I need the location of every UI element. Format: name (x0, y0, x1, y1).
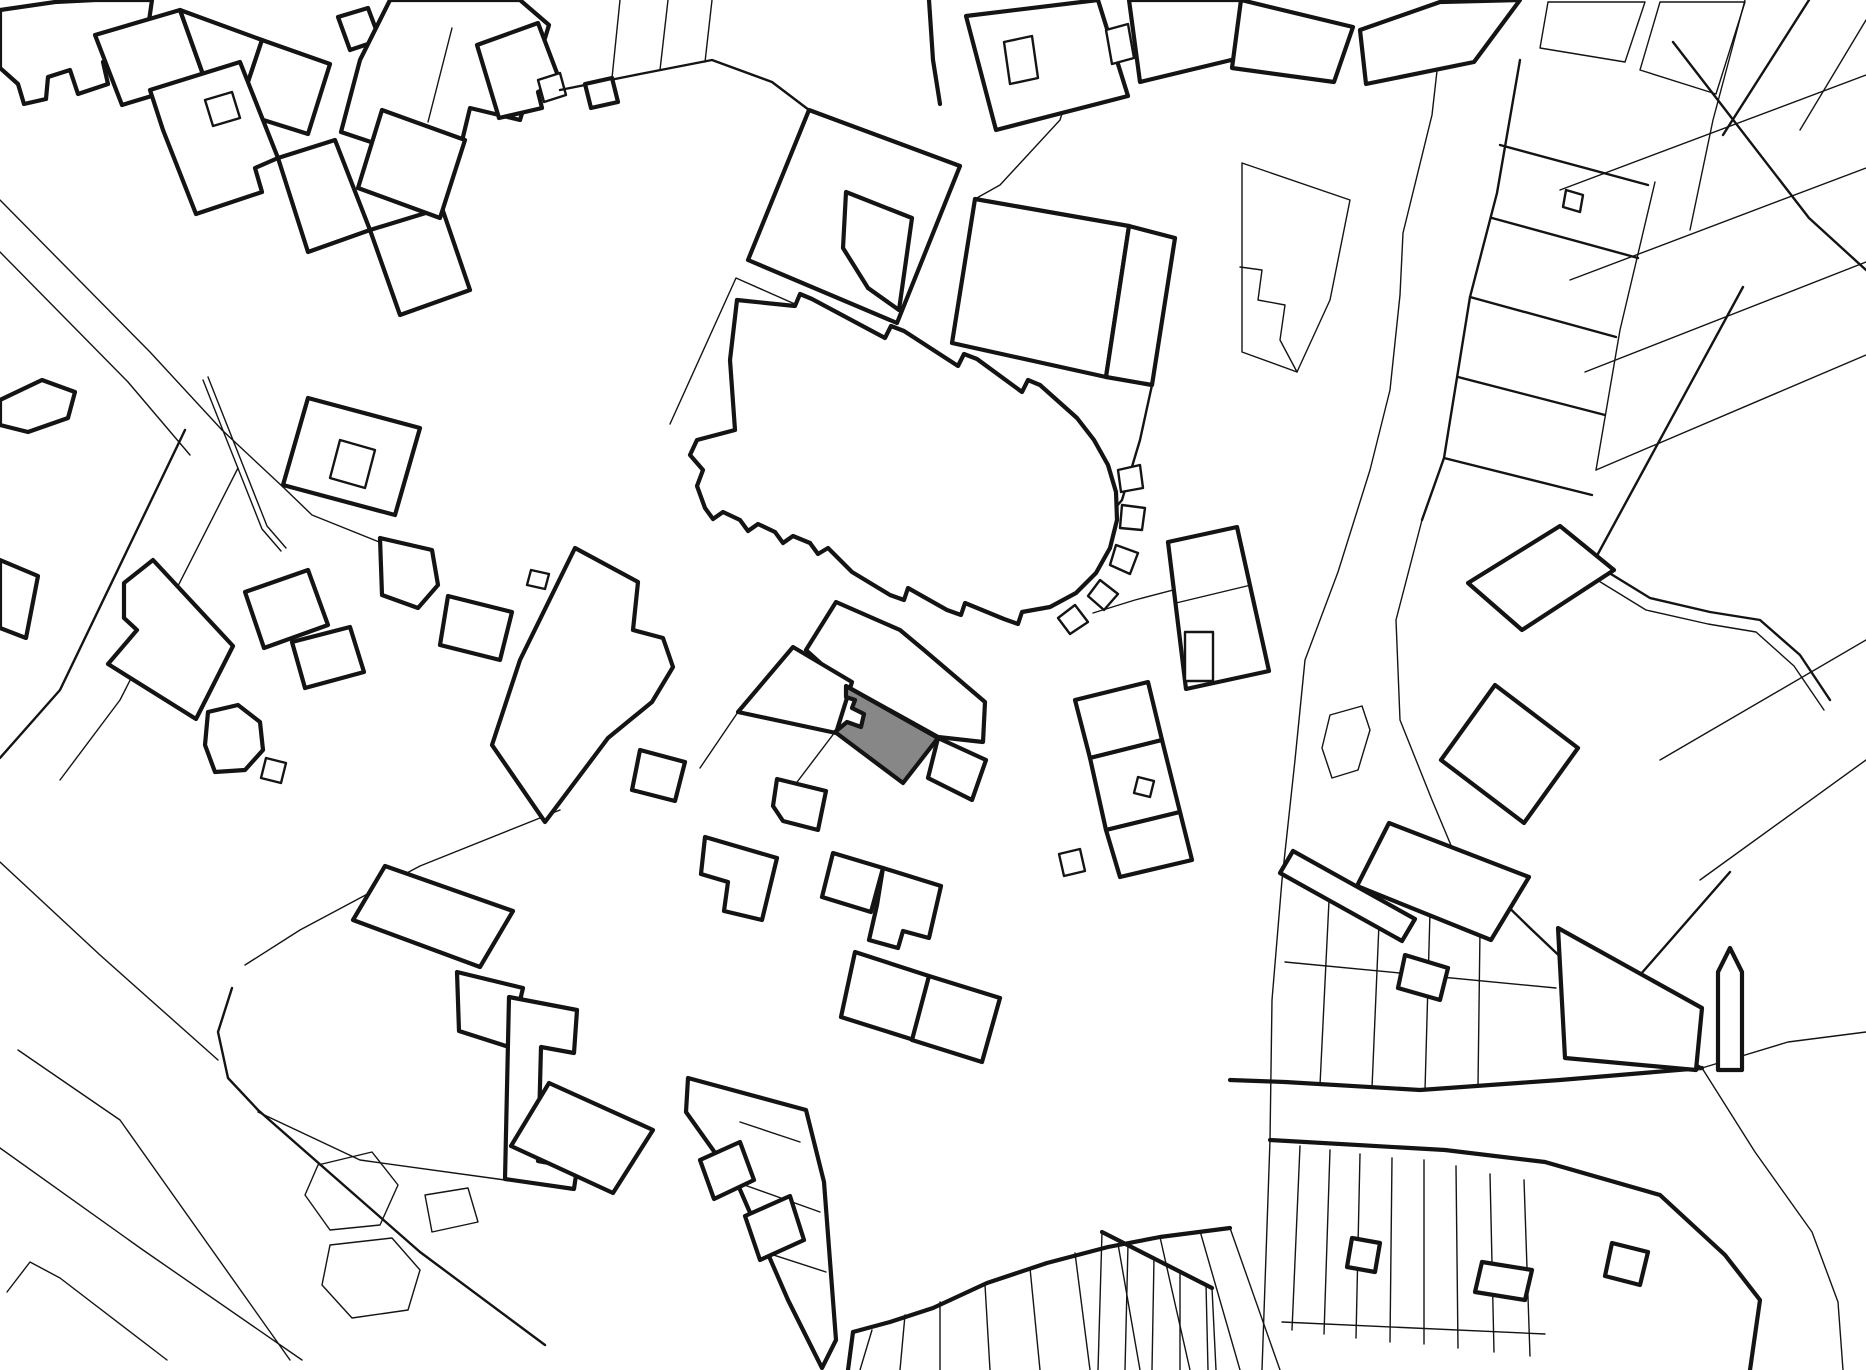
parcel-boundary (1282, 1322, 1545, 1334)
fan-strip (1118, 1244, 1140, 1370)
building-annex (1185, 632, 1213, 681)
strip-parcel (1152, 1258, 1154, 1370)
apse-chapel (1118, 465, 1143, 492)
building (966, 0, 1128, 130)
building (912, 976, 1000, 1062)
parcel-boundary (1478, 930, 1480, 1086)
parcel-divider (1444, 458, 1592, 495)
building-annex (1134, 777, 1154, 797)
parcel-boundary (1240, 267, 1297, 372)
strip-parcel (1212, 1288, 1216, 1370)
parcel-boundary (1596, 182, 1655, 470)
fan-strip (1075, 1253, 1090, 1370)
building (1232, 0, 1353, 82)
fan-strip (860, 1330, 872, 1370)
apse-chapel (1058, 605, 1088, 634)
rail-line (0, 1148, 302, 1360)
parcel-boundary (1320, 880, 1330, 1085)
street-boundary (1396, 520, 1458, 862)
parcel-divider (1492, 218, 1638, 258)
parcel-boundary (1700, 760, 1866, 880)
parcel-boundary (705, 0, 712, 62)
fan-top-edge (853, 1228, 1230, 1332)
building (632, 750, 685, 801)
block-edge (1422, 60, 1520, 520)
apse-chapel (1088, 580, 1118, 610)
country-road (1593, 563, 1830, 700)
building (440, 596, 512, 660)
building (928, 738, 986, 800)
building (108, 560, 233, 719)
strip-parcel (1324, 1150, 1330, 1334)
building-annex (1059, 849, 1085, 876)
fan-left-edge (848, 1332, 853, 1370)
site-plan-svg (0, 0, 1866, 1370)
parcel-divider (1458, 377, 1605, 415)
block-edge (1270, 1140, 1760, 1370)
building (0, 380, 75, 432)
road-line (1673, 42, 1866, 270)
parcel-boundary (1242, 163, 1350, 372)
strip-parcel (1098, 1232, 1102, 1370)
building (1563, 190, 1583, 212)
parcel-divider (1470, 297, 1616, 337)
building (278, 140, 370, 252)
apse-chapel (1120, 505, 1145, 530)
building-annex (261, 758, 286, 783)
block-edge (1230, 1068, 1702, 1090)
apse-chapel (1110, 545, 1138, 574)
street-boundary (222, 430, 283, 487)
parcel-boundary (1540, 2, 1645, 62)
building (370, 208, 470, 315)
parcel-boundary (1640, 2, 1745, 94)
building (1558, 928, 1702, 1070)
building (585, 78, 618, 108)
parcel-boundary (612, 0, 620, 78)
tower (1718, 948, 1742, 1070)
building-annex (1106, 24, 1134, 64)
building (1441, 685, 1578, 823)
parcel-boundary (1800, 20, 1866, 130)
building (1168, 527, 1269, 689)
building (1347, 1238, 1380, 1272)
fan-strip (900, 1315, 905, 1370)
parcel-boundary (1570, 168, 1866, 280)
garden-plot (425, 1188, 478, 1232)
garden-plot (322, 1238, 420, 1318)
parcel-boundary (660, 0, 668, 70)
strip-parcel (1206, 1284, 1208, 1370)
fan-strip (1230, 1228, 1280, 1370)
street-curve (1702, 1068, 1843, 1370)
street-boundary (0, 862, 218, 1060)
rail-line (7, 1262, 167, 1360)
street-boundary (1262, 1140, 1270, 1370)
block-edge (1102, 1232, 1212, 1288)
road-line (1723, 0, 1809, 135)
building (353, 866, 513, 967)
building (0, 560, 38, 638)
strip-parcel (1390, 1158, 1392, 1342)
building (952, 199, 1129, 377)
strip-parcel (1456, 1166, 1458, 1348)
parcel-boundary (700, 712, 738, 768)
fan-strip (1030, 1268, 1040, 1370)
building (822, 853, 883, 912)
building (869, 868, 941, 948)
building (380, 538, 438, 608)
courtyard-hole (1004, 36, 1038, 84)
strip-parcel (1292, 1146, 1300, 1330)
strip-parcel (1125, 1245, 1128, 1370)
courtyard-hole (527, 570, 549, 589)
bastion (205, 705, 263, 772)
block-edge (929, 0, 940, 104)
street-median (203, 380, 281, 551)
fan-strip (985, 1285, 990, 1370)
parcel-boundary (1425, 912, 1430, 1090)
parcel-blob (1322, 706, 1370, 778)
parcel-boundary (1660, 640, 1866, 760)
parcel-boundary (1596, 355, 1866, 470)
parcel-boundary (258, 1112, 505, 1180)
fan-strip (1160, 1237, 1190, 1370)
building (1605, 1243, 1648, 1285)
building (1360, 0, 1520, 84)
building (1475, 1262, 1532, 1300)
building (773, 779, 826, 830)
street-median (208, 377, 286, 548)
cadastral-map-canvas (0, 0, 1866, 1370)
road-line (1593, 287, 1743, 563)
building (1468, 526, 1614, 630)
building (1398, 955, 1448, 1000)
rail-line (18, 1050, 290, 1360)
building (701, 837, 777, 920)
country-road (1589, 575, 1824, 710)
